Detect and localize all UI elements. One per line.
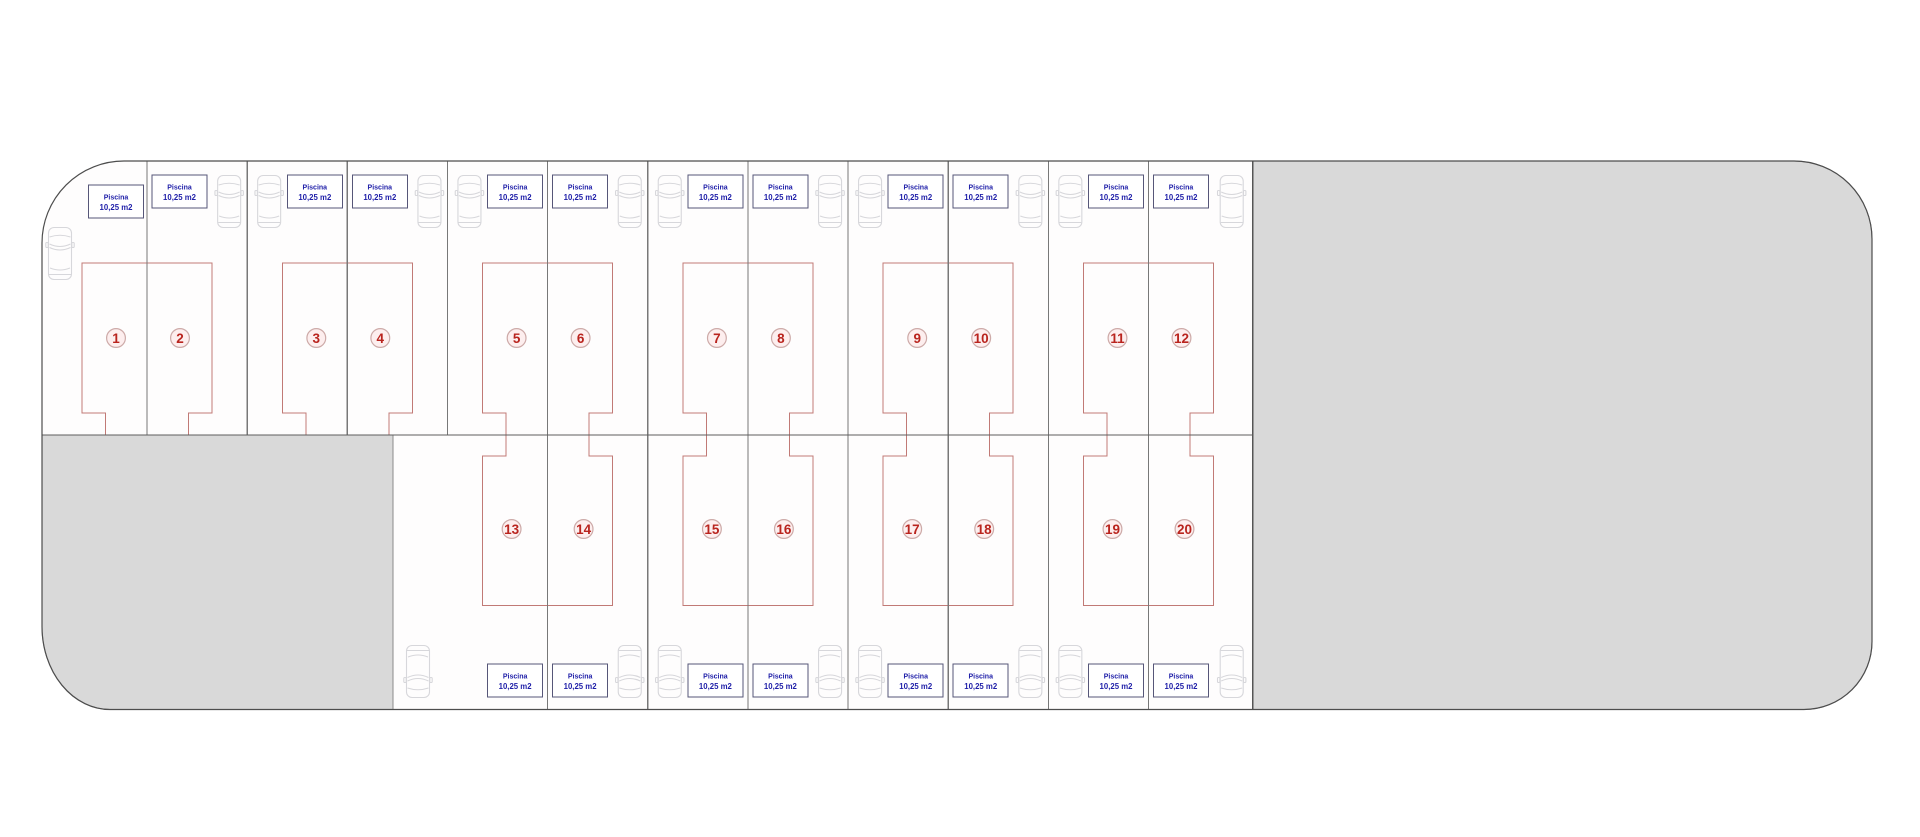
svg-text:20: 20 <box>1177 522 1192 537</box>
svg-text:16: 16 <box>776 522 792 537</box>
svg-text:13: 13 <box>504 522 520 537</box>
svg-text:18: 18 <box>977 522 993 537</box>
svg-text:3: 3 <box>313 331 321 346</box>
svg-text:1: 1 <box>112 331 120 346</box>
svg-text:14: 14 <box>576 522 592 537</box>
svg-text:11: 11 <box>1110 331 1125 346</box>
svg-text:4: 4 <box>377 331 385 346</box>
svg-text:9: 9 <box>913 331 921 346</box>
svg-text:8: 8 <box>777 331 785 346</box>
svg-text:10: 10 <box>974 331 989 346</box>
svg-text:7: 7 <box>713 331 721 346</box>
svg-text:15: 15 <box>704 522 720 537</box>
svg-text:19: 19 <box>1105 522 1120 537</box>
svg-text:12: 12 <box>1174 331 1189 346</box>
svg-text:5: 5 <box>513 331 521 346</box>
svg-text:6: 6 <box>577 331 585 346</box>
svg-text:17: 17 <box>905 522 920 537</box>
svg-text:2: 2 <box>176 331 184 346</box>
